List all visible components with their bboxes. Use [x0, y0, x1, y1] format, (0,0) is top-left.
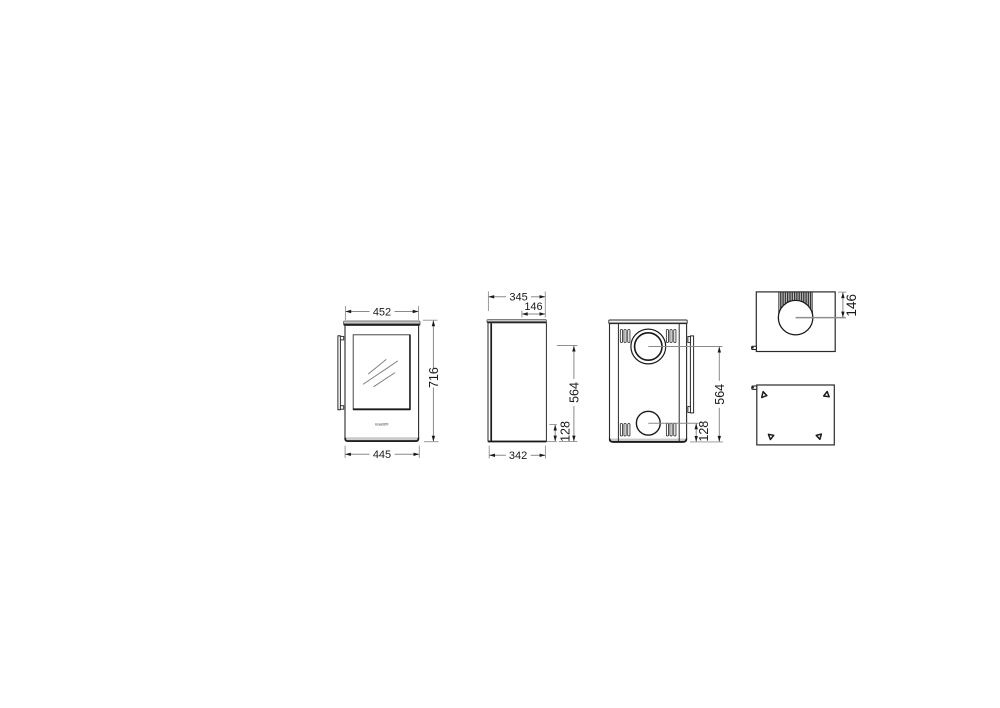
svg-text:128: 128 [559, 421, 573, 442]
svg-text:564: 564 [567, 382, 581, 403]
svg-text:452: 452 [373, 306, 391, 318]
svg-text:128: 128 [697, 421, 711, 442]
svg-text:146: 146 [844, 294, 859, 317]
svg-text:mcnarchBTF: mcnarchBTF [375, 423, 389, 427]
svg-text:564: 564 [713, 384, 727, 405]
svg-text:445: 445 [373, 449, 391, 461]
svg-text:716: 716 [427, 367, 441, 388]
svg-text:342: 342 [509, 450, 527, 462]
svg-text:146: 146 [524, 301, 542, 313]
